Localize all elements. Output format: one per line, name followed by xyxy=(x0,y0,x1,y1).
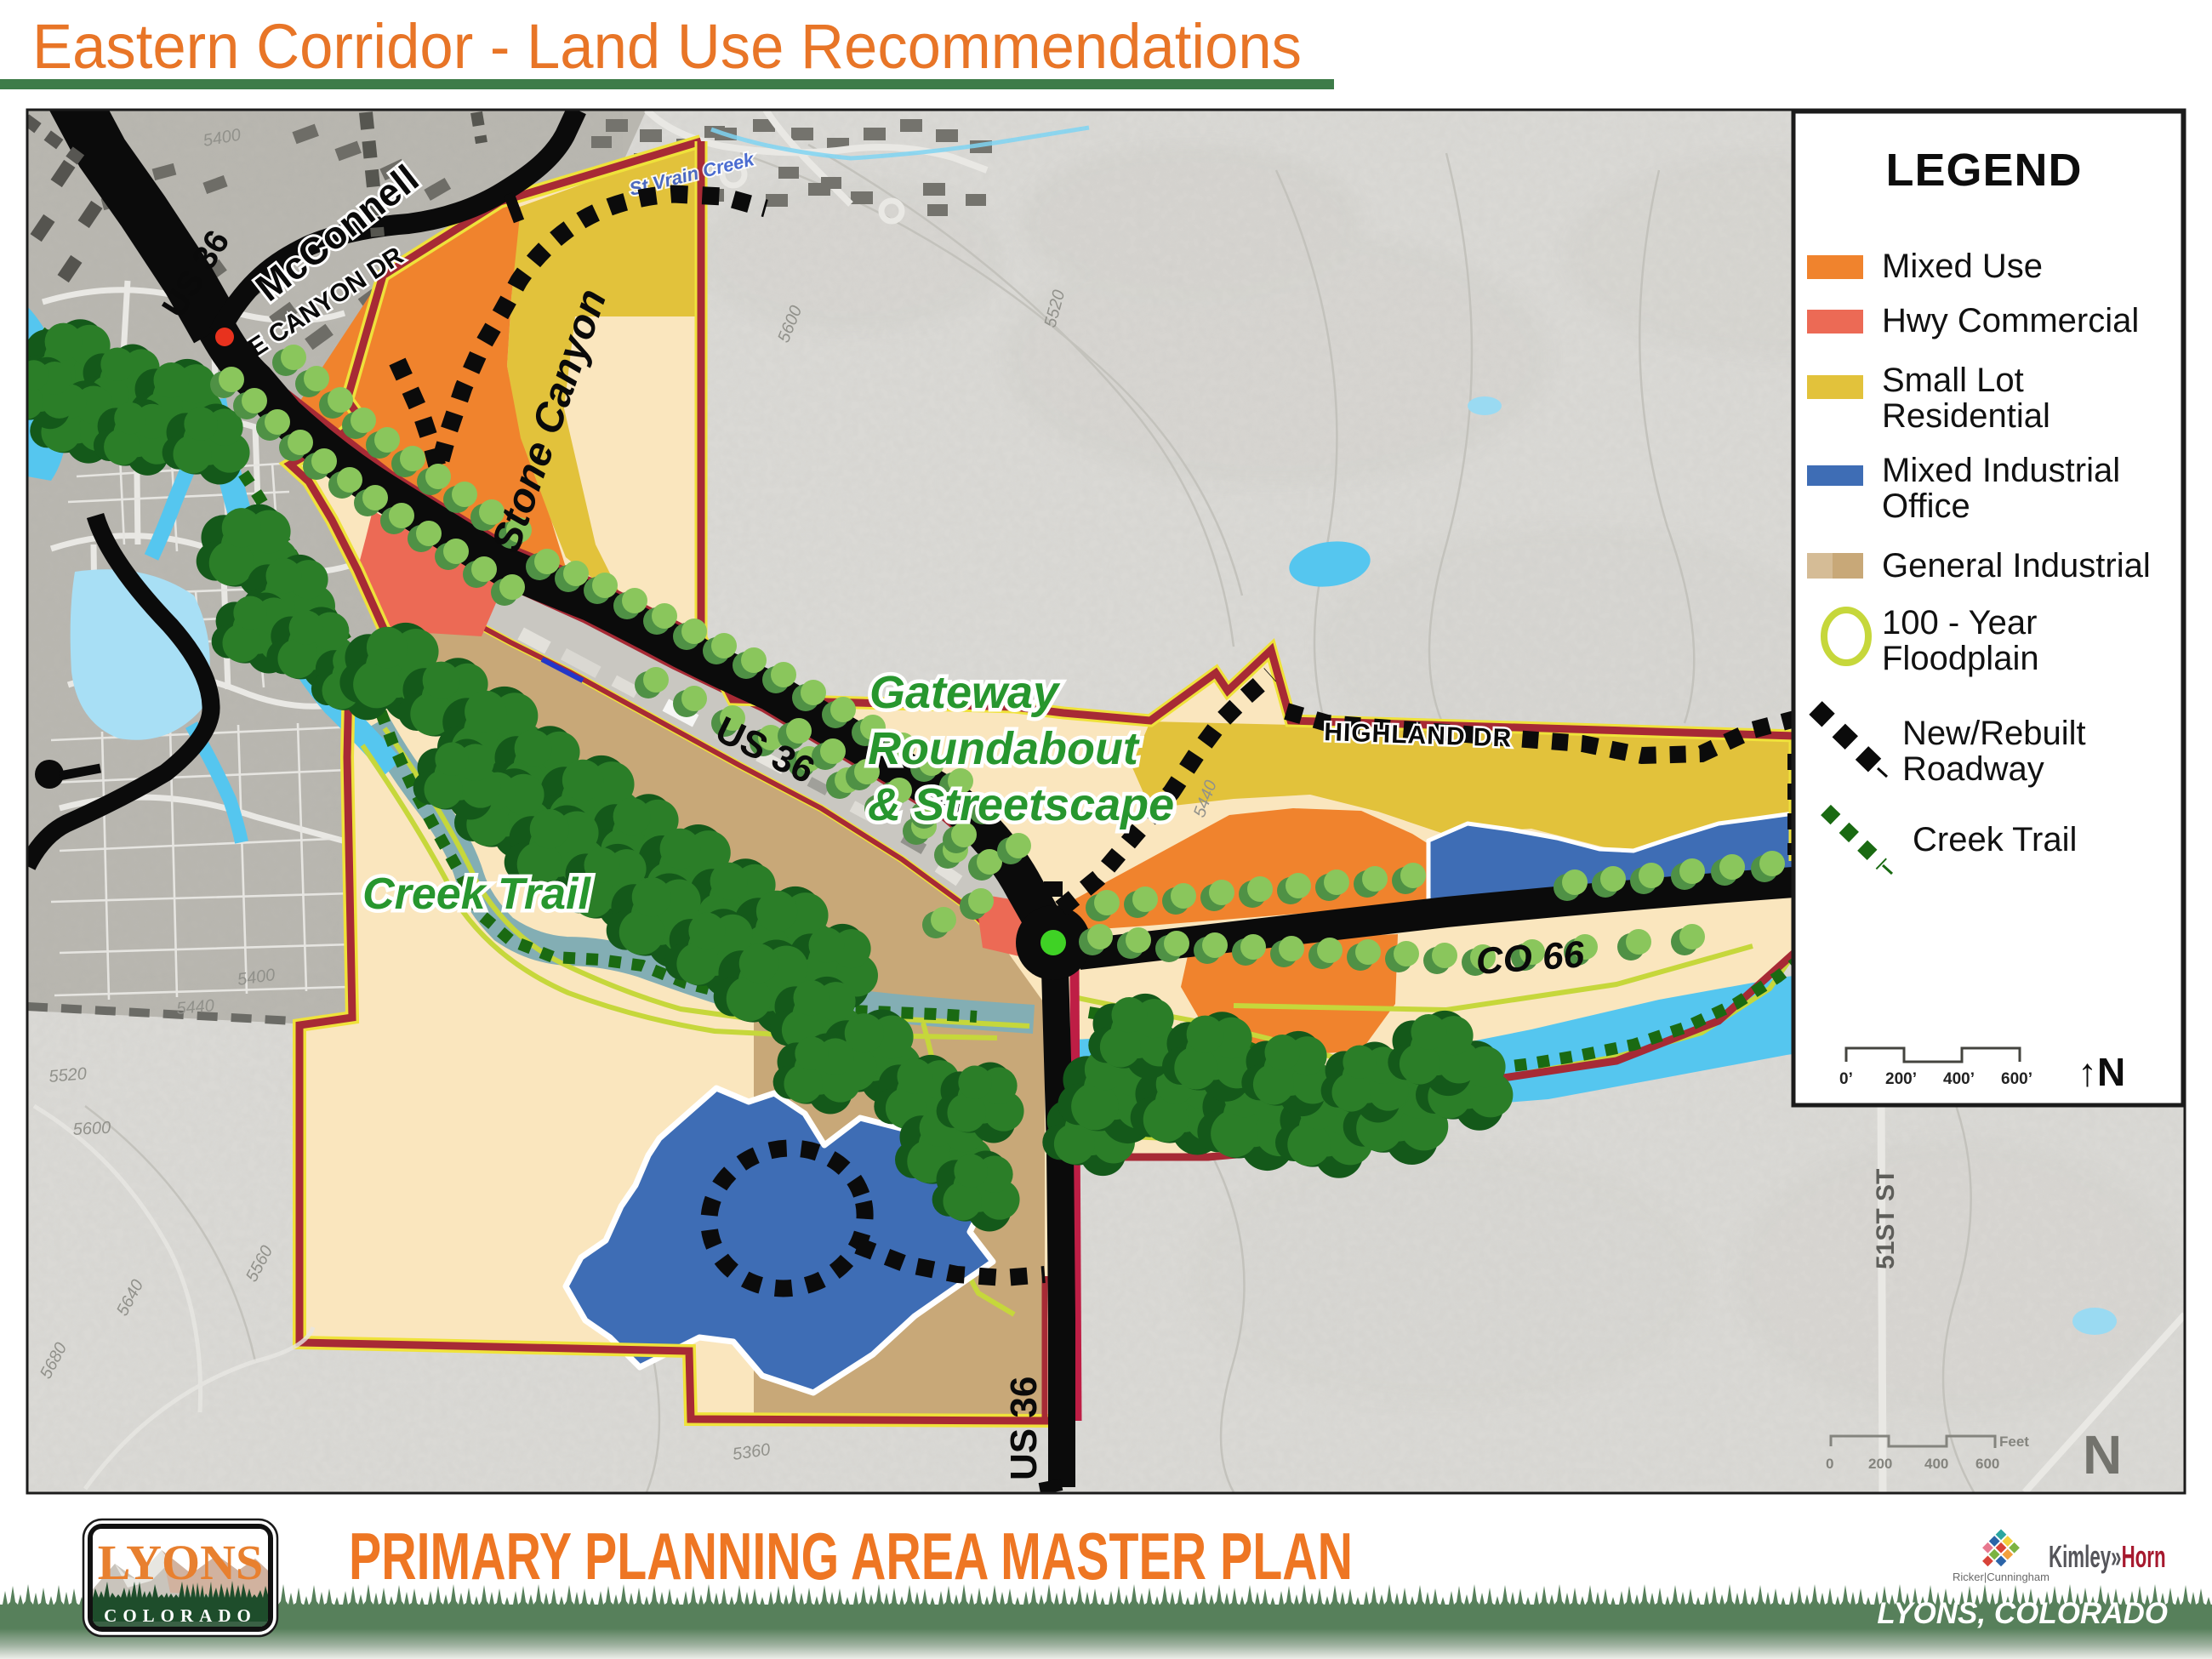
svg-text:N: N xyxy=(2083,1424,2122,1485)
svg-text:US 36: US 36 xyxy=(1003,1377,1045,1480)
svg-text:5520: 5520 xyxy=(48,1064,88,1086)
svg-text:400: 400 xyxy=(1924,1456,1948,1472)
svg-text:Gateway: Gateway xyxy=(869,667,1061,718)
svg-text:100 - Year: 100 - Year xyxy=(1882,604,2037,641)
svg-text:5600: 5600 xyxy=(72,1119,111,1139)
svg-text:Hwy Commercial: Hwy Commercial xyxy=(1882,302,2139,339)
svg-text:5440: 5440 xyxy=(176,996,215,1018)
svg-text:Creek Trail: Creek Trail xyxy=(1913,821,2077,858)
svg-text:& Streetscape: & Streetscape xyxy=(868,779,1174,830)
svg-text:Ricker|Cunningham: Ricker|Cunningham xyxy=(1953,1571,2050,1583)
svg-text:Floodplain: Floodplain xyxy=(1882,640,2039,677)
svg-text:Mixed Industrial: Mixed Industrial xyxy=(1882,452,2120,489)
svg-text:Kimley»Horn: Kimley»Horn xyxy=(2049,1541,2166,1575)
svg-text:Office: Office xyxy=(1882,487,1970,525)
svg-text:600: 600 xyxy=(1975,1456,1999,1472)
svg-text:600’: 600’ xyxy=(2001,1070,2032,1088)
svg-text:0: 0 xyxy=(1826,1456,1833,1472)
svg-text:200’: 200’ xyxy=(1885,1070,1917,1088)
svg-text:Small Lot: Small Lot xyxy=(1882,362,2024,399)
svg-text:400’: 400’ xyxy=(1943,1070,1975,1088)
svg-text:Residential: Residential xyxy=(1882,397,2050,435)
svg-text:LYONS, COLORADO: LYONS, COLORADO xyxy=(1877,1597,2168,1630)
svg-text:200: 200 xyxy=(1868,1456,1892,1472)
svg-text:Feet: Feet xyxy=(1999,1434,2029,1450)
svg-text:Creek Trail: Creek Trail xyxy=(362,869,591,919)
svg-text:LYONS: LYONS xyxy=(98,1535,264,1590)
svg-text:51ST ST: 51ST ST xyxy=(1872,1169,1900,1269)
svg-text:0’: 0’ xyxy=(1839,1070,1853,1088)
svg-text:General Industrial: General Industrial xyxy=(1882,547,2151,584)
svg-text:↑N: ↑N xyxy=(2078,1050,2125,1094)
svg-text:CO 66: CO 66 xyxy=(1474,933,1586,983)
svg-text:Roadway: Roadway xyxy=(1902,750,2044,788)
svg-text:LEGEND: LEGEND xyxy=(1885,145,2082,196)
svg-text:COLORADO: COLORADO xyxy=(104,1605,257,1626)
svg-text:Eastern Corridor - Land Use Re: Eastern Corridor - Land Use Recommendati… xyxy=(32,11,1302,82)
svg-text:New/Rebuilt: New/Rebuilt xyxy=(1902,715,2086,752)
svg-text:Roundabout: Roundabout xyxy=(868,723,1140,774)
svg-text:Mixed Use: Mixed Use xyxy=(1882,248,2043,285)
